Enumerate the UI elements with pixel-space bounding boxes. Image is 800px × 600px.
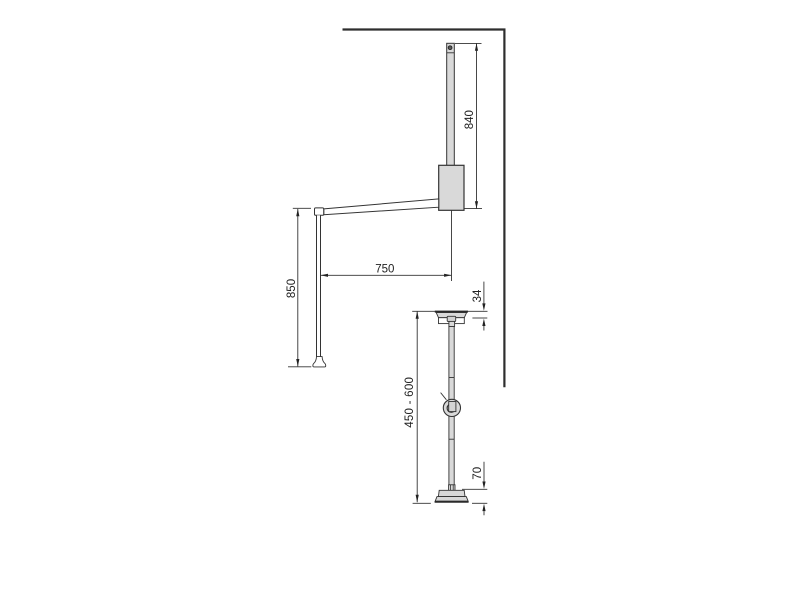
svg-text:34: 34: [472, 289, 484, 302]
svg-text:750: 750: [375, 263, 394, 275]
svg-text:840: 840: [464, 110, 476, 129]
svg-text:450 - 600: 450 - 600: [404, 377, 416, 428]
svg-text:850: 850: [286, 279, 298, 298]
svg-text:70: 70: [472, 467, 484, 480]
